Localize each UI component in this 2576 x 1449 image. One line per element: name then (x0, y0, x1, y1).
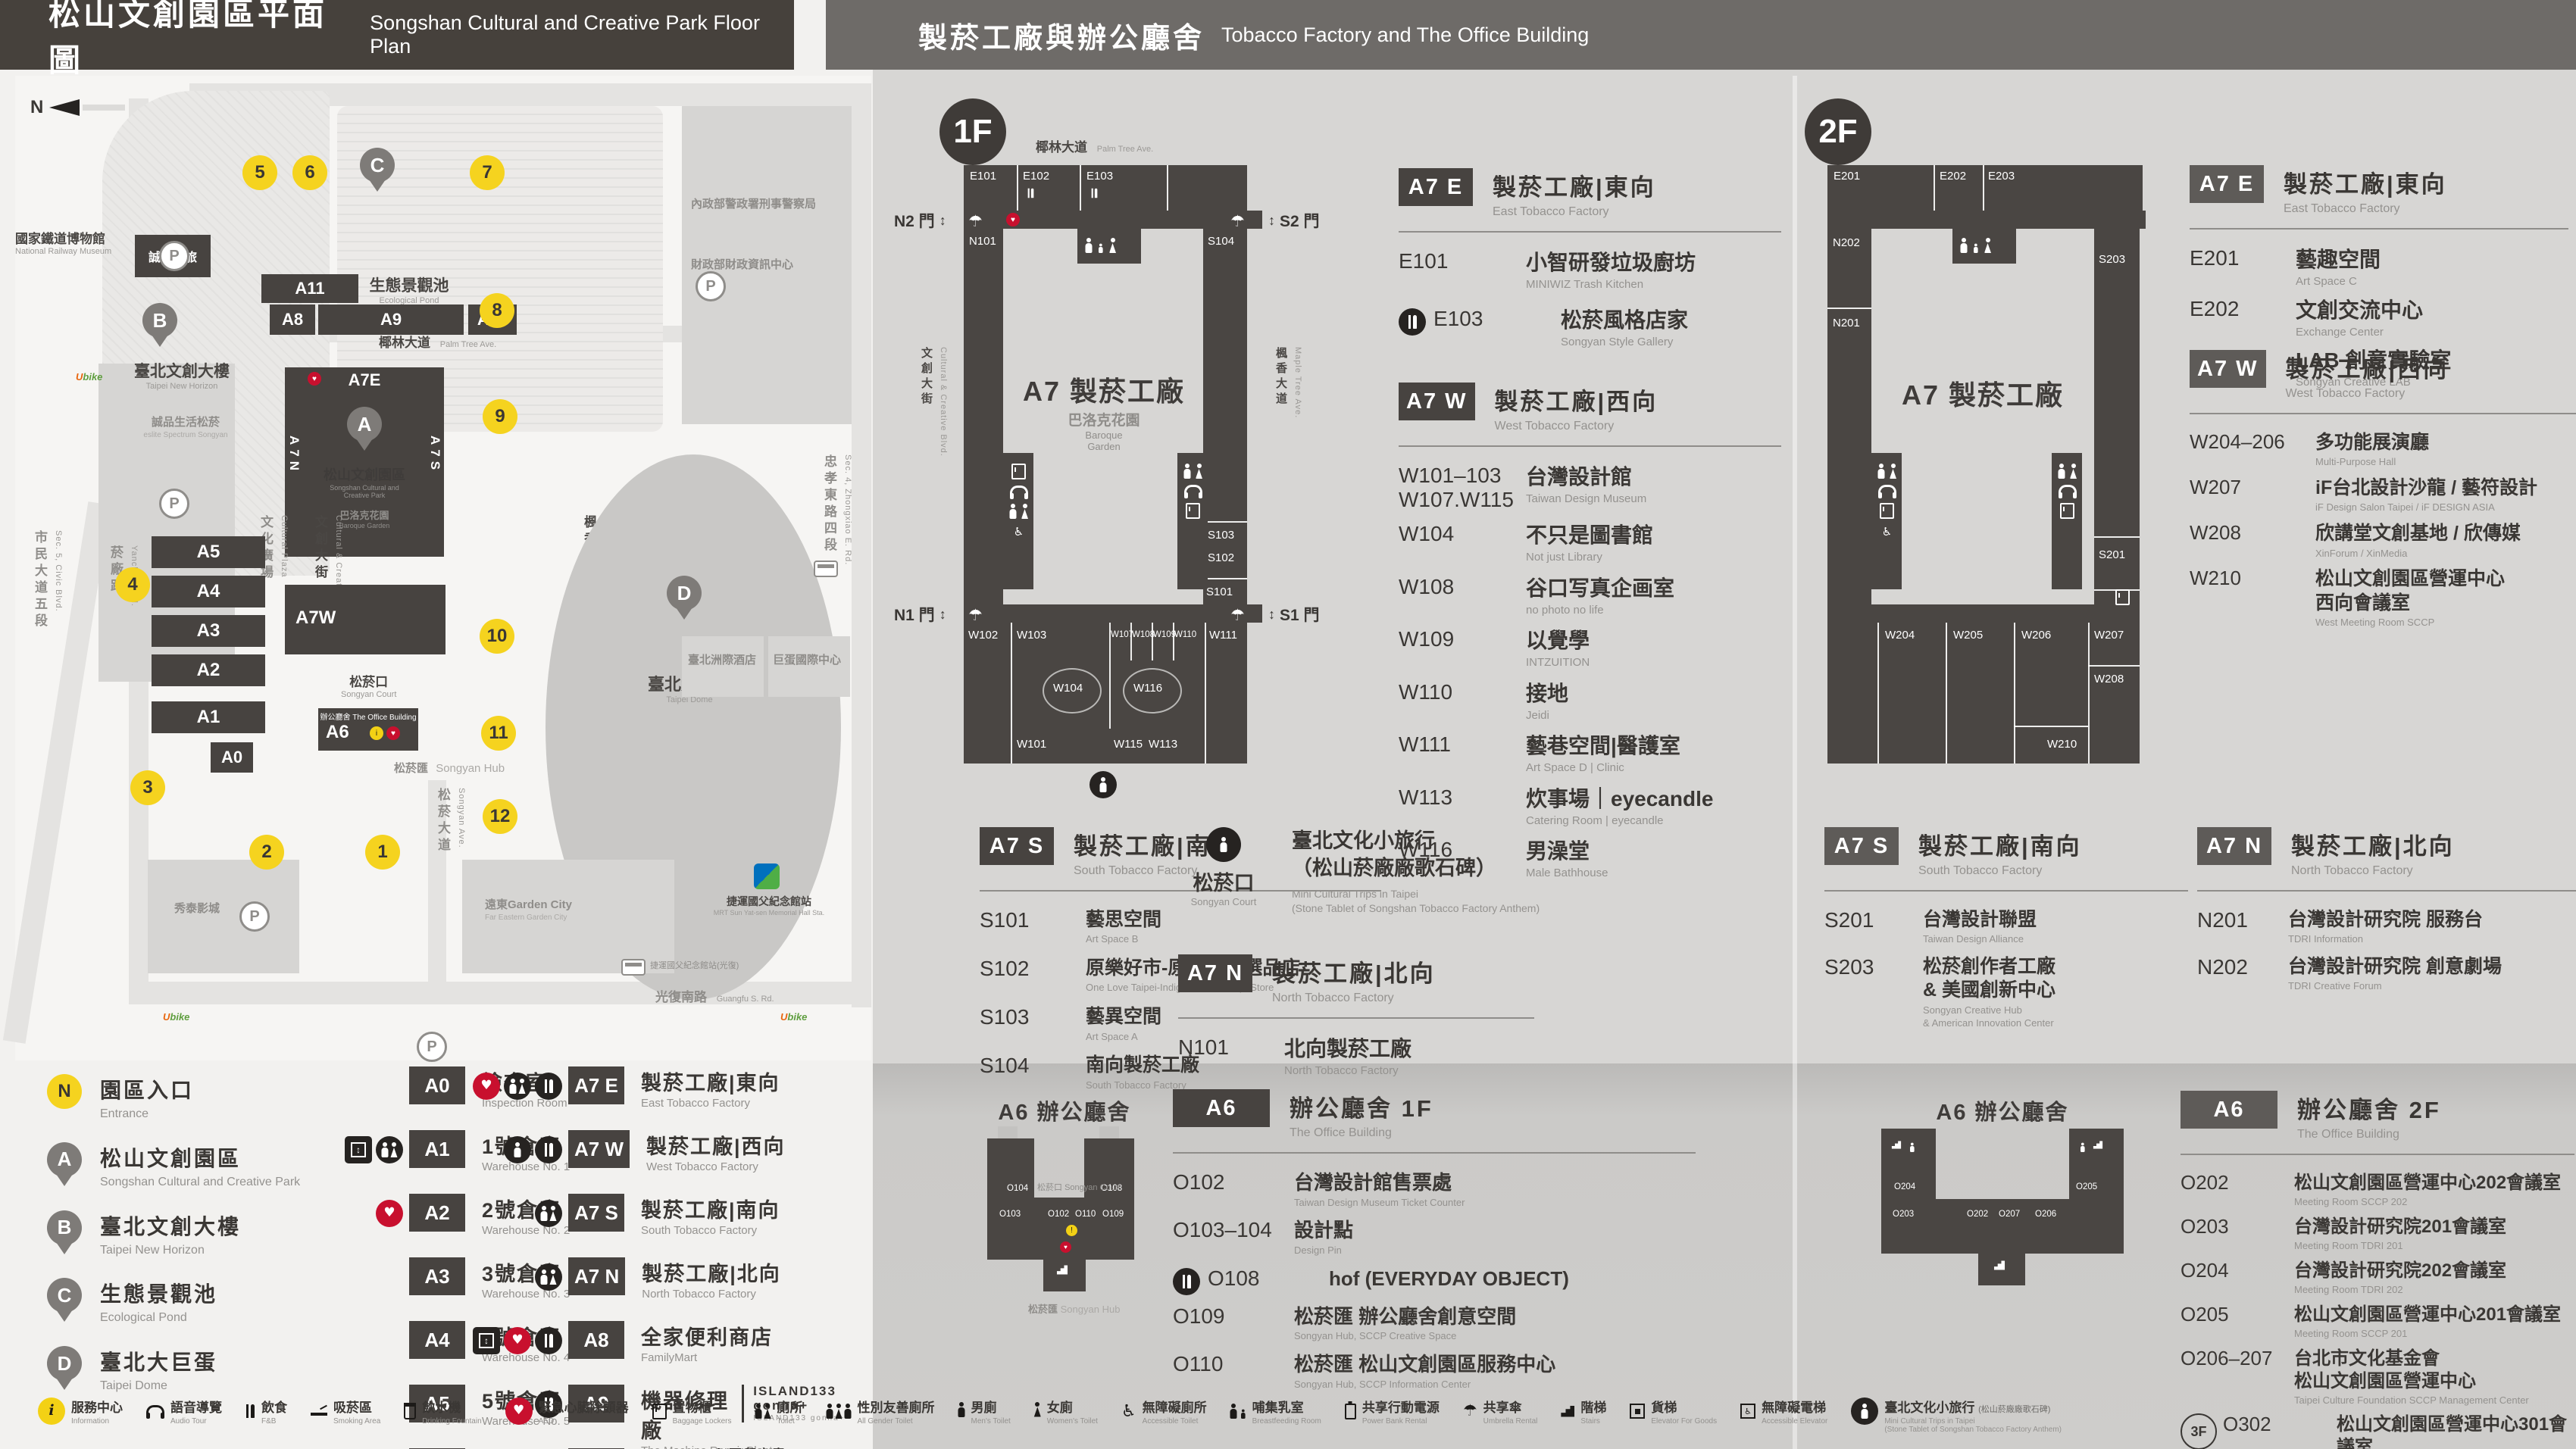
legend-pin-row: N 園區入口 Entrance (47, 1074, 320, 1123)
dir-row-en: Songyan Hub, SCCP Creative Space (1294, 1330, 1696, 1343)
allgender-icon (826, 1404, 851, 1419)
amenity-zh: 女廁 (1047, 1397, 1098, 1416)
amenity-item: 哺集乳室 Breastfeeding Room (1230, 1397, 1321, 1426)
dir-row-en: West Meeting Room SCCP (2315, 617, 2576, 629)
south-corridor (1827, 604, 2140, 623)
dir-zh: 製菸工廠|北向 (1272, 954, 1436, 988)
guangfu-zh: 光復南路 (655, 990, 707, 1004)
men-icon (1009, 504, 1016, 519)
dir-zh: 製菸工廠|東向 (2284, 165, 2447, 199)
a7s-text: A7S (428, 436, 442, 474)
bus-stop-icon (621, 959, 646, 976)
dir-row-icon (1173, 1268, 1208, 1295)
legend-row-icons (477, 1263, 568, 1291)
locker-icon (2115, 589, 2130, 605)
legend-building-row: A7 N 製菸工廠|北向 North Tobacco Factory (477, 1257, 871, 1310)
court-zh: 松菸口 (349, 675, 388, 689)
dir-a6-2f: A6 辦公廳舍 2F The Office Building O202 松山文創… (2181, 1091, 2574, 1449)
dir-1f-a7e: A7 E 製菸工廠|東向 East Tobacco Factory E101 小… (1399, 168, 1781, 364)
court-item-zh2: （松山菸廠廠歌石碑） (1292, 854, 1540, 882)
legend-building-code: A2 (409, 1194, 465, 1232)
room-label: E202 (1940, 170, 1966, 183)
palm-en: Palm Tree Ave. (440, 340, 496, 349)
dir-row-en: Meeting Room TDRI 201 (2294, 1240, 2574, 1253)
amenity-zh-text: 無障礙廁所 (1143, 1401, 1207, 1415)
amenity-en: Drinking Fountain (422, 1417, 481, 1426)
dir-row-en: Songyan Hub, SCCP Information Center (1294, 1379, 1696, 1391)
legend-building-code: A0 (409, 1066, 465, 1104)
amenity-icon (1345, 1397, 1356, 1426)
room-label: O205 (2076, 1182, 2097, 1191)
right-title-en: Tobacco Factory and The Office Building (1221, 23, 1589, 47)
songyan-court-map-label: 松菸口 Songyan Court (341, 674, 396, 701)
dir-row-code: W113 (1399, 785, 1526, 810)
toilet-box (1077, 229, 1141, 264)
dir-badge: A7 N (2197, 827, 2271, 865)
garden-en: Far Eastern Garden City (485, 913, 572, 923)
amenity-zh-text: 貨梯 (1651, 1401, 1677, 1415)
block-A3: A3 (152, 615, 265, 647)
dir-row-code: N202 (2197, 955, 2288, 979)
dir-row-code: W208 (2190, 522, 2315, 545)
nursing-icon (1230, 1404, 1246, 1419)
women-icon (1021, 504, 1028, 519)
gate-s2: ↕S2 門 (1268, 209, 1320, 232)
dir-row-code: N101 (1178, 1035, 1284, 1060)
dir-row-zh: 北向製菸工廠 (1284, 1035, 1633, 1062)
amenity-zh: 飲食 (261, 1397, 287, 1416)
horizon-en: Taipei New Horizon (106, 382, 258, 392)
legend-building-code: A3 (409, 1257, 465, 1295)
ubike-icon: Ubike (163, 1011, 189, 1023)
audio-icon (1010, 486, 1028, 498)
room-label: W110 (1174, 630, 1196, 639)
dir-row-en: North Tobacco Factory (1284, 1063, 1633, 1079)
amenity-en: Smoking Area (333, 1417, 380, 1426)
aed-icon: ♥ (1060, 1241, 1071, 1253)
amenity-zh-text: 哺集乳室 (1252, 1401, 1304, 1415)
mrt-zh: 捷運國父紀念館站 (727, 895, 811, 907)
en-line1: Not just Library (1526, 551, 1602, 564)
garden-zh: 遠東Garden City (485, 898, 572, 911)
songyan-court-block: 松菸口 Songyan Court 臺北文化小旅行 （松山菸廠廠歌石碑） Min… (1178, 827, 1784, 916)
room-label: S102 (1208, 551, 1234, 564)
dir-row-code: W101–103W107.W115 (1399, 464, 1526, 512)
smoking-icon (311, 1407, 327, 1416)
a7n-text: A7N (287, 436, 302, 475)
dir-en: East Tobacco Factory (2284, 202, 2447, 216)
dir-row-en: Design Pin (1294, 1244, 1696, 1257)
amenity-item: 置物櫃 Baggage Lockers (652, 1397, 732, 1426)
eslite-spectrum-label: 誠品生活松菸 eslite Spectrum Songyan (114, 415, 258, 440)
gate-s2-label: S2 門 (1280, 209, 1320, 232)
amenity-zh: 階梯 (1580, 1397, 1606, 1416)
amenity-zh-text: 飲食 (261, 1401, 287, 1415)
zh-line2: 西向會議室 (2315, 592, 2410, 614)
east-facility-box (1177, 453, 1208, 589)
entrance-9: 9 (483, 399, 517, 434)
zh-line1: 松山文創園區營運中心 (2315, 568, 2505, 589)
dir-row-zh: 台灣設計研究院201會議室 (2294, 1216, 2574, 1238)
amenity-icon (1034, 1397, 1041, 1426)
accessible-icon: ♿ (1882, 525, 1892, 539)
dir-2f-a7n: A7 N 製菸工廠|北向 North Tobacco Factory N201 … (2197, 827, 2576, 1002)
room-label: W204 (1885, 629, 1915, 642)
amenity-en: Power Bank Rental (1362, 1417, 1440, 1426)
amenity-icon (826, 1397, 851, 1426)
room-label: W107 (1111, 630, 1133, 639)
dir-row-zh: 台北市文化基金會松山文創園區營運中心 (2294, 1348, 2574, 1393)
legend-building-code: A4 (409, 1321, 465, 1359)
amenity-item: 女廁 Women's Toilet (1034, 1397, 1098, 1426)
amenity-icon (311, 1397, 327, 1426)
dir-row-en: TDRI Information (2288, 933, 2576, 946)
dir-badge: A7 E (2190, 165, 2264, 203)
dir-row: O110 松菸匯 松山文創園區服務中心 Songyan Hub, SCCP In… (1173, 1352, 1696, 1391)
audio-icon (146, 1405, 164, 1417)
legend-buildings-col2: A7 E 製菸工廠|東向 East Tobacco Factory A7 W 製… (477, 1066, 871, 1449)
dir-row-en: Exchange Center (2296, 325, 2568, 340)
dir-row-zh: 台灣設計研究院 創意劇場 (2288, 955, 2576, 979)
zhongxiao-en: Sec. 4, Zhongxiao E. Rd. (843, 454, 852, 565)
zh-line2: & 美國創新中心 (1923, 979, 2055, 1001)
dir-badge: A6 (1173, 1089, 1270, 1127)
room-label: W115 (1114, 738, 1143, 751)
songyanave-zh: 松菸大道 (433, 788, 452, 854)
dir-row-zh: 谷口写真企画室 (1526, 575, 1781, 601)
en-line1: Art Space D | Clinic (1526, 761, 1624, 774)
en-line1: Catering Room | eyecandle (1526, 814, 1664, 827)
legend-building-code: A7 E (568, 1066, 624, 1104)
ubike-icon: Ubike (76, 371, 102, 383)
room-label: W111 (1209, 629, 1237, 642)
room-label: W208 (2094, 673, 2124, 685)
room-label: O110 (1075, 1210, 1096, 1219)
umbrella-icon (968, 214, 983, 230)
songyan-court-icon (1089, 771, 1117, 798)
court-item-zh: 臺北文化小旅行 (1292, 827, 1540, 854)
amenity-item: 共享行動電源 Power Bank Rental (1345, 1397, 1440, 1426)
dir-row-zh: 欣講堂文創基地 / 欣傳媒 (2315, 522, 2576, 545)
stairs-icon (1892, 1141, 1902, 1149)
umbrella-icon (1230, 214, 1245, 230)
block-A1-label: A1 (197, 707, 220, 728)
a7-center-label: A7 製菸工廠 (1888, 373, 2077, 413)
dir-row-code: O102 (1173, 1170, 1294, 1194)
parking-icon: P (696, 271, 726, 301)
pin-D: D (667, 576, 702, 623)
room-label: O207 (1999, 1210, 2020, 1219)
amenity-en: Accessible Toilet (1143, 1417, 1207, 1426)
amenity-zh-text: 語音導覽 (170, 1401, 222, 1415)
block-A3-label: A3 (197, 620, 220, 642)
dir-row-zh: 文創交流中心 (2296, 297, 2568, 323)
dir-row-code: W109 (1399, 627, 1526, 651)
men-icon (1960, 238, 1967, 253)
dir-row: O206–207 台北市文化基金會松山文創園區營運中心 Taipei Cultu… (2181, 1348, 2574, 1407)
dir-row-en: Songyan Creative Hub& American Innovatio… (1923, 1004, 2188, 1030)
dir-row-zh: 松山文創園區營運中心201會議室 (2294, 1304, 2574, 1326)
entrance-11: 11 (481, 716, 516, 751)
dir-row-en: Art Space D | Clinic (1526, 760, 1781, 776)
spectrum-en: eslite Spectrum Songyan (114, 430, 258, 440)
walking-person-icon (1221, 837, 1227, 852)
showtime-label: 秀泰影城 (174, 901, 220, 917)
audio-icon (2059, 485, 2077, 497)
men-icon (1910, 1143, 1915, 1152)
legend-building-row: A7 E 製菸工廠|東向 East Tobacco Factory (477, 1066, 871, 1120)
dir-row: E103 松菸風格店家 Songyan Style Gallery (1399, 307, 1781, 350)
dir-row-en: Meeting Room SCCP 201 (2294, 1328, 2574, 1341)
dir-zh: 辦公廳舍 1F (1290, 1089, 1433, 1123)
room-label: S101 (1206, 586, 1233, 598)
park-map: N 國家鐵道博物館 National Railway Museum C 生態景觀… (15, 76, 871, 1060)
dir-row: W208 欣講堂文創基地 / 欣傳媒 XinForum / XinMedia (2190, 522, 2576, 560)
dir-row: W113 炊事場｜eyecandle Catering Room | eyeca… (1399, 785, 1781, 829)
umbrella-icon (1463, 1403, 1477, 1419)
maple1f-en: Maple Tree Ave. (1293, 347, 1302, 418)
amenity-en-text: Mini Cultural Trips in Taipei (1884, 1417, 1974, 1426)
dir-row-en: XinForum / XinMedia (2315, 548, 2576, 561)
amenity-en: All Gender Toilet (857, 1417, 934, 1426)
block-A0: A0 (211, 742, 253, 773)
dir-en: East Tobacco Factory (1493, 205, 1656, 219)
park-zh: 松山文創園區 (305, 464, 424, 484)
zhongxiao-label: 忠孝東路四段 Sec. 4, Zhongxiao E. Rd. (820, 454, 852, 565)
dir-row-code: W210 (2190, 567, 2315, 590)
amenity-en: Mini Cultural Trips in Taipei(Stone Tabl… (1884, 1417, 2062, 1434)
block-A9-label: A9 (380, 310, 402, 329)
room-label: E103 (1086, 170, 1113, 183)
en-line1: INTZUITION (1526, 656, 1590, 669)
mrt-en: MRT Sun Yat-sen Memorial Hall Sta. (701, 909, 837, 917)
dir-row: O204 台灣設計研究院202會議室 Meeting Room TDRI 202 (2181, 1260, 2574, 1297)
zh-line1: 谷口写真企画室 (1526, 576, 1674, 600)
amenity-en-text: All Gender Toilet (857, 1417, 912, 1426)
room-label: O206 (2035, 1210, 2056, 1219)
dir-row-zh: 松山文創園區營運中心202會議室 (2294, 1172, 2574, 1194)
a6-court-label: 松菸口 Songyan Court (1037, 1182, 1120, 1193)
dir-badge: A7 S (980, 827, 1054, 865)
dir-1f-a7n: A7 N 製菸工廠|北向 North Tobacco Factory N101 … (1178, 954, 1633, 1093)
room-label: W109 (1153, 630, 1176, 639)
amenity-icon (755, 1397, 771, 1426)
a6-hub-label: 松菸匯 Songyan Hub (1028, 1304, 1120, 1316)
left-header: 松山文創園區平面圖 Songshan Cultural and Creative… (0, 0, 794, 70)
room-label: O203 (1893, 1210, 1914, 1219)
amenity-zh: 貨梯 (1651, 1397, 1717, 1416)
amenity-en-text: Drinking Fountain (422, 1417, 481, 1426)
amenity-icon (1740, 1397, 1755, 1426)
dir-row: W109 以覺學 INTZUITION (1399, 627, 1781, 670)
amenity-zh-text: 臺北文化小旅行 (1884, 1401, 1974, 1415)
legend-building-zh: 製菸工廠|西向 (646, 1130, 786, 1160)
en-line1: Songyan Style Gallery (1561, 336, 1673, 348)
maple-1f-label: 楓香大道 Maple Tree Ave. (1273, 347, 1302, 418)
gate-n1: N1 門↕ (894, 603, 946, 626)
gate-s1-label: S1 門 (1280, 603, 1320, 626)
dir-zh: 製菸工廠|東向 (1493, 168, 1656, 202)
map-pin-icon: A (47, 1142, 82, 1189)
legend-row-icons (477, 1327, 568, 1354)
park-en1: Songshan Cultural and (305, 484, 424, 492)
left-title-en: Songshan Cultural and Creative Park Floo… (370, 11, 794, 58)
en-line1: Taiwan Design Museum (1526, 492, 1646, 505)
amenity-zh: 性別友善廁所 (857, 1397, 934, 1416)
amenity-zh-text: 無障礙電梯 (1762, 1401, 1826, 1415)
fia-label: 財政部財政資訊中心 (691, 258, 843, 273)
parking-letter: P (427, 1038, 436, 1056)
dir-row-code: W110 (1399, 680, 1526, 704)
dir-badge: A6 (2181, 1091, 2277, 1129)
east-facility-box (2052, 453, 2082, 589)
dir-row: W204–206 多功能展演廳 Multi-Purpose Hall (2190, 431, 2576, 469)
dir-2f-a7s: A7 S 製菸工廠|南向 South Tobacco Factory S201 … (1824, 827, 2188, 1038)
women-icon (1984, 238, 1991, 253)
room-label: W210 (2047, 738, 2077, 751)
block-A2-label: A2 (197, 660, 220, 681)
dir-row: W104 不只是圖書館 Not just Library (1399, 522, 1781, 565)
powerbank-icon (1345, 1404, 1356, 1419)
block-A7W-label: A7W (295, 607, 336, 629)
palm-ave-1f-label: 椰林大道 Palm Tree Ave. (1036, 139, 1153, 155)
en-line1: Songyan Creative Hub (1923, 1004, 2022, 1016)
amenity-zh-text: 階梯 (1580, 1401, 1606, 1415)
dir-row: O205 松山文創園區營運中心201會議室 Meeting Room SCCP … (2181, 1304, 2574, 1341)
dir-row: W207 iF台北設計沙龍 / 藝符設計 iF Design Salon Tai… (2190, 476, 2576, 514)
entrance-12: 12 (483, 799, 517, 834)
audio-icon (1184, 485, 1202, 497)
amenity-en-text: Stairs (1580, 1417, 1600, 1426)
zh-line1: 松菸風格店家 (1561, 308, 1688, 332)
a6-plan-title: A6 辦公廳舍 (1908, 1095, 2097, 1126)
left-title-zh: 松山文創園區平面圖 (48, 0, 353, 81)
songyan-ave-label: 松菸大道 Songyan Ave. (433, 788, 466, 854)
amenity-item: 貨梯 Elevator For Goods (1630, 1397, 1717, 1426)
dir-zh: 製菸工廠|南向 (1918, 827, 2082, 861)
cib-zh: 內政部警政署刑事警察局 (691, 198, 816, 211)
locker-icon (1011, 464, 1026, 479)
legend-building-zh: 製菸工廠|北向 (642, 1257, 781, 1287)
room-label: E203 (1988, 170, 2015, 183)
dir-row-code: S104 (980, 1054, 1086, 1078)
dir-row: E201 藝趣空間 Art Space C (2190, 246, 2568, 289)
zh-line2: 松山文創園區營運中心 (2294, 1371, 2476, 1391)
dir-en: The Office Building (1290, 1126, 1433, 1140)
dir-row-code: S203 (1824, 955, 1923, 979)
map-pin-icon: D (47, 1346, 82, 1393)
amenity-item: 語音導覽 Audio Tour (146, 1397, 222, 1426)
new-horizon-label: 臺北文創大樓 Taipei New Horizon (106, 362, 258, 392)
amenity-zh-text: 服務中心 (71, 1401, 123, 1415)
legend-building-en: South Tobacco Factory (641, 1224, 780, 1237)
amenity-zh-text: 飲水機 (422, 1401, 461, 1415)
civic-blvd-label: 市民大道五段 Sec. 5, Civic Blvd. (30, 530, 63, 630)
legend-row-icons (318, 1200, 409, 1227)
amenity-icon (1121, 1397, 1136, 1426)
legend-pin-en: Songshan Cultural and Creative Park (100, 1175, 300, 1191)
acclift-icon (1740, 1404, 1755, 1419)
dir-row-en: Taipei Culture Foundation SCCP Managemen… (2294, 1394, 2574, 1407)
block-A8: A8 (270, 304, 315, 335)
south-corridor (964, 604, 1262, 623)
en-line2: & American Innovation Center (1923, 1017, 2054, 1029)
legend-pin-zh: 生態景觀池 (100, 1278, 217, 1308)
guangfu-en: Guangfu S. Rd. (717, 995, 774, 1004)
dir-badge: A7 N (1178, 954, 1252, 992)
amenity-item: 吸菸區 Smoking Area (311, 1397, 380, 1426)
umbrella-icon (1230, 607, 1245, 624)
legend-pin-zh: 園區入口 (100, 1074, 194, 1104)
hub-zh: 松菸匯 (394, 762, 428, 775)
pin-A-letter: A (347, 407, 382, 442)
toilet-icon (535, 1200, 562, 1227)
dir-row-code: N201 (2197, 908, 2288, 932)
en-line1: MINIWIZ Trash Kitchen (1526, 278, 1643, 291)
entrance-7: 7 (470, 155, 505, 190)
zh-line1: 以覺學 (1526, 629, 1590, 652)
amenity-en: AED (539, 1417, 629, 1426)
amenity-zh-text: 置物櫃 (673, 1401, 711, 1415)
dir-row: W210 松山文創園區營運中心西向會議室 West Meeting Room S… (2190, 567, 2576, 629)
a6-text: A6 (326, 722, 349, 742)
railway-zh: 國家鐵道博物館 (15, 232, 105, 246)
dir-row-en: Taiwan Design Museum (1526, 492, 1781, 507)
dir-row-code: O108 (1208, 1266, 1329, 1291)
women-icon (2070, 464, 2077, 479)
parking-icon: P (417, 1032, 447, 1062)
zh-line1: 多功能展演廳 (2315, 432, 2429, 453)
stairs-icon (1057, 1266, 1068, 1275)
legend-building-code: A1 (409, 1130, 465, 1168)
aed-icon (376, 1200, 403, 1227)
amenity-icon (1230, 1397, 1246, 1426)
stairs-icon (1561, 1406, 1574, 1417)
audio-icon (1878, 485, 1896, 497)
legend-pin-row: A 松山文創園區 Songshan Cultural and Creative … (47, 1142, 320, 1191)
legend-building-row: A7 W 製菸工廠|西向 West Tobacco Factory (477, 1130, 871, 1183)
amenity-item: 無障礙廁所 Accessible Toilet (1121, 1397, 1207, 1426)
dir-row-zh: 設計點 (1294, 1218, 1696, 1243)
floor-1f-badge: 1F (939, 98, 1006, 165)
zh-line1: 欣講堂文創基地 / 欣傳媒 (2315, 523, 2521, 544)
parking-letter: P (169, 495, 179, 513)
a6-court-en: Songyan Court (1064, 1183, 1120, 1192)
floor-divider-line (1793, 76, 1797, 1449)
dir-badge: A7 W (1399, 383, 1475, 420)
amenity-en-text: Accessible Elevator (1762, 1417, 1827, 1426)
garden-city-label: 遠東Garden City Far Eastern Garden City (485, 898, 572, 923)
zh-line1: 松山文創園區營運中心201會議室 (2294, 1304, 2561, 1325)
bus-stop-label: 捷運國父紀念館站(光復) (650, 960, 739, 971)
horizon-zh: 臺北文創大樓 (134, 363, 230, 380)
east-rooms-bar (1827, 165, 2143, 211)
hotel2-zh: 臺北洲際酒店 (688, 654, 756, 667)
map-pin-icon: B (47, 1210, 82, 1257)
amenity-en: Baggage Lockers (673, 1417, 732, 1426)
en-line1: no photo no life (1526, 604, 1604, 617)
walking-person-icon (1100, 777, 1107, 792)
garden-en2: Garden (1009, 441, 1199, 452)
block-A9: A9 (318, 304, 464, 335)
block-A7S-label: A7S (427, 436, 442, 474)
parking-icon: P (239, 901, 270, 932)
amenity-en: Toilet (777, 1417, 802, 1426)
parking-icon: P (159, 241, 189, 271)
dir-row-code: W104 (1399, 522, 1526, 546)
amenity-item: 性別友善廁所 All Gender Toilet (826, 1397, 934, 1426)
cib-label: 內政部警政署刑事警察局 (691, 197, 843, 212)
